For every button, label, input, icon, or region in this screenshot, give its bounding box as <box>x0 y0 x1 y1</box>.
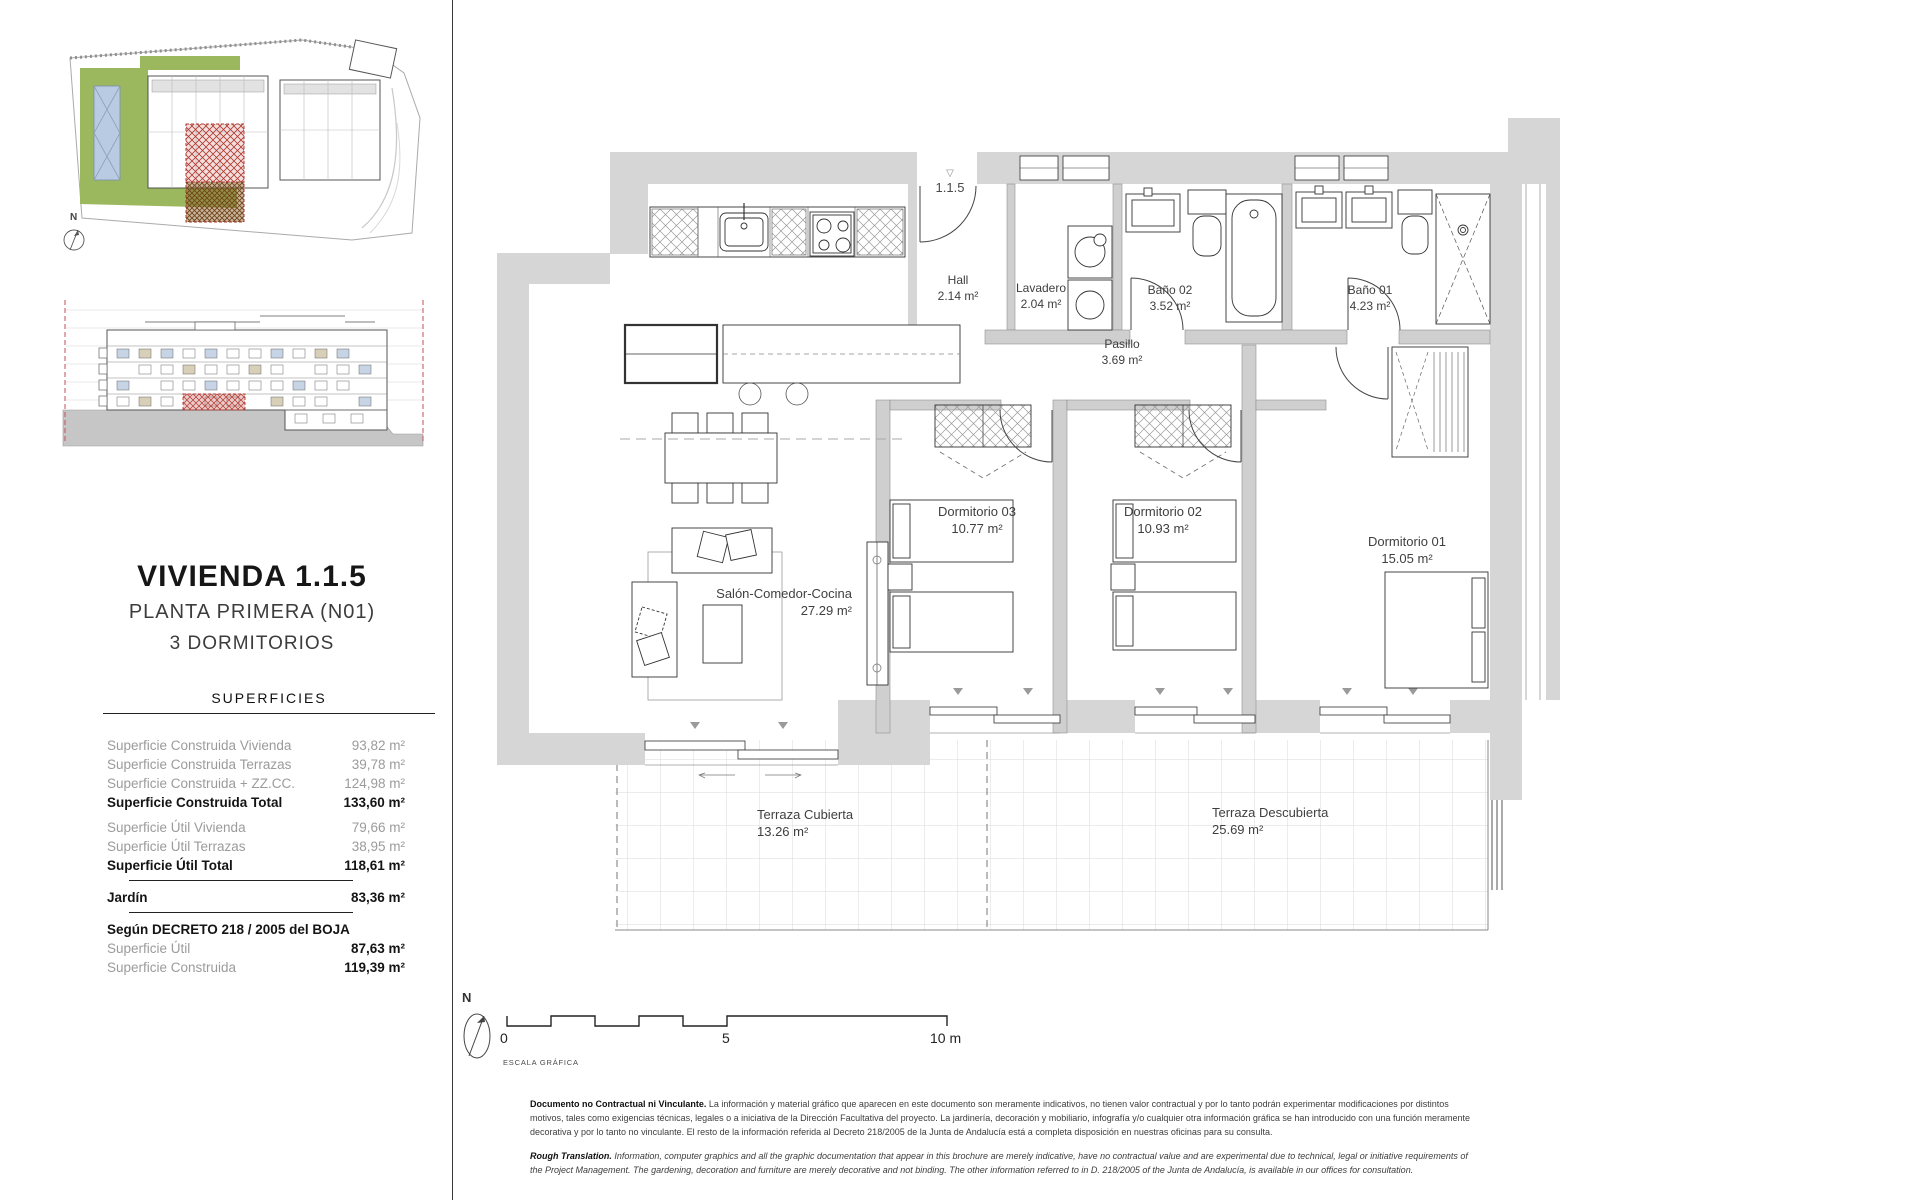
title-block: VIVIENDA 1.1.5 PLANTA PRIMERA (N01) 3 DO… <box>58 560 446 655</box>
shower-icon <box>1436 194 1490 324</box>
unit-title: VIVIENDA 1.1.5 <box>58 560 446 594</box>
entrance-tag: 1.1.5 <box>936 180 965 195</box>
table-row-total: Superficie Útil Total118,61 m² <box>107 856 405 875</box>
room-label-terraza-descubierta: Terraza Descubierta25.69 m² <box>1212 804 1328 838</box>
site-north-label: N <box>70 212 77 223</box>
table-row: Superficie Útil Terrazas38,95 m² <box>107 837 405 856</box>
room-label-pasillo: Pasillo3.69 m² <box>1102 337 1143 369</box>
room-label-dormitorio01: Dormitorio 0115.05 m² <box>1368 533 1446 567</box>
room-label-dormitorio03: Dormitorio 0310.77 m² <box>938 503 1016 537</box>
scale-caption: ESCALA GRÁFICA <box>503 1058 579 1067</box>
table-row-total: Superficie Construida Total133,60 m² <box>107 793 405 812</box>
washer-icon <box>1068 226 1112 330</box>
unit-bedrooms: 3 DORMITORIOS <box>58 633 446 655</box>
floor-plan-drawing <box>497 118 1560 935</box>
table-row: Superficie Útil Vivienda79,66 m² <box>107 818 405 837</box>
table-rule <box>129 912 353 913</box>
table-row: Superficie Útil 87,63 m² <box>107 939 405 958</box>
north-arrow-icon <box>452 1002 498 1066</box>
disclaimer-en: Rough Translation. Information, computer… <box>530 1150 1478 1178</box>
scale-bar <box>498 1008 968 1034</box>
room-label-salon: Salón-Comedor-Cocina27.29 m² <box>716 585 852 619</box>
room-label-dormitorio02: Dormitorio 0210.93 m² <box>1124 503 1202 537</box>
entrance-marker: ▽ 1.1.5 <box>936 168 965 195</box>
disclaimer-es: Documento no Contractual ni Vinculante. … <box>530 1098 1478 1140</box>
plan-sheet: N <box>0 0 1920 1200</box>
room-label-hall: Hall2.14 m² <box>938 273 979 305</box>
table-row-jardin: Jardín83,36 m² <box>107 888 405 907</box>
room-label-bano01: Baño 014.23 m² <box>1348 283 1393 315</box>
elevation-drawing <box>55 292 435 450</box>
unit-floor: PLANTA PRIMERA (N01) <box>58 601 446 624</box>
table-row: Superficie Construida Vivienda93,82 m² <box>107 736 405 755</box>
table-row: Superficie Construida 119,39 m² <box>107 958 405 977</box>
room-label-terraza-cubierta: Terraza Cubierta13.26 m² <box>757 806 853 840</box>
table-row: Superficie Construida + ZZ.CC.124,98 m² <box>107 774 405 793</box>
table-rule <box>129 880 353 881</box>
site-key-plan <box>52 28 442 263</box>
surfaces-header: SUPERFICIES <box>103 690 435 714</box>
tv-unit-icon <box>867 542 888 685</box>
scale-tick-5: 5 <box>722 1030 730 1046</box>
decree-header: Según DECRETO 218 / 2005 del BOJA <box>107 920 405 939</box>
room-label-bano02: Baño 023.52 m² <box>1148 283 1193 315</box>
scale-tick-0: 0 <box>500 1030 508 1046</box>
walk-in-closet-icon <box>1392 347 1468 457</box>
north-label: N <box>462 990 471 1005</box>
stove-icon <box>810 212 854 256</box>
table-row: Superficie Construida Terrazas39,78 m² <box>107 755 405 774</box>
site-north-icon <box>64 230 84 250</box>
surfaces-table: Superficie Construida Vivienda93,82 m² S… <box>107 736 405 977</box>
room-label-lavadero: Lavadero2.04 m² <box>1016 281 1066 313</box>
entrance-arrow-icon: ▽ <box>936 168 965 179</box>
scale-tick-10: 10 m <box>930 1030 961 1046</box>
